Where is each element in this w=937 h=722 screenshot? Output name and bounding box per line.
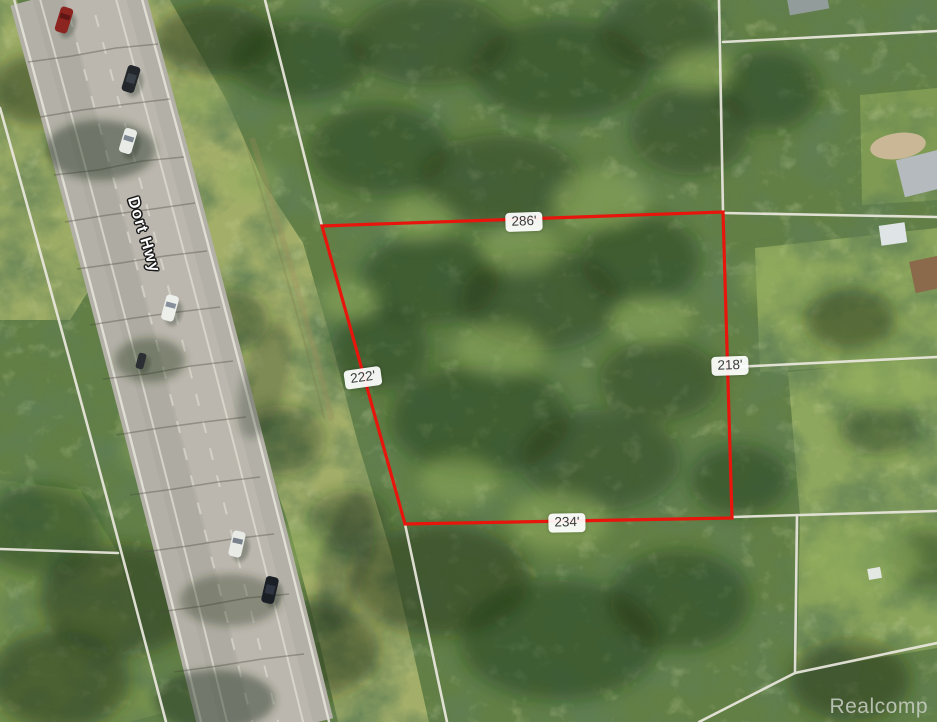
map-scene [0,0,937,722]
dimension-label-right: 218' [711,356,749,377]
satellite-map: 286' 222' 218' 234' Dort Hwy Realcomp [0,0,937,722]
watermark: Realcomp [829,695,928,719]
dimension-label-bottom: 234' [548,513,585,533]
structure-white-shed [879,222,908,245]
structure-white-lawn [867,567,882,580]
dimension-label-top: 286' [505,212,543,233]
